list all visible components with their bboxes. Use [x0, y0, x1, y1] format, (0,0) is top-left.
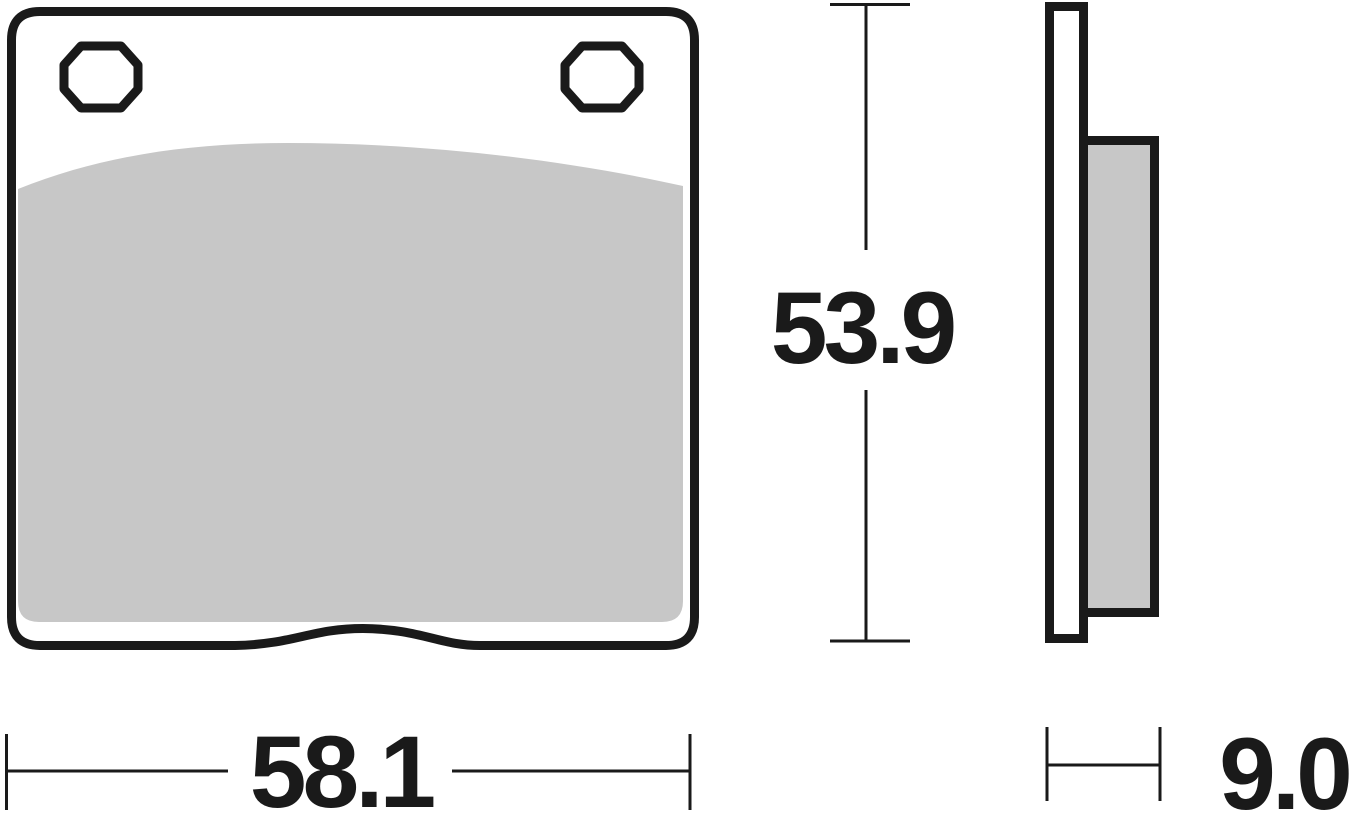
height-dimension: 53.9: [771, 5, 954, 642]
mounting-hole-right: [565, 46, 639, 108]
side-backplate: [1050, 7, 1084, 639]
thickness-dimension-label: 9.0: [1219, 717, 1349, 813]
brake-pad-drawing: 58.1 53.9 9.0: [0, 0, 1355, 813]
side-friction-material: [1083, 141, 1155, 613]
width-dimension-label: 58.1: [250, 715, 434, 813]
height-dimension-label: 53.9: [771, 271, 954, 385]
thickness-dimension: 9.0: [1047, 717, 1349, 813]
side-view: [1050, 7, 1155, 639]
front-friction-material: [18, 143, 683, 622]
front-view: [12, 12, 695, 646]
technical-drawing-canvas: 58.1 53.9 9.0: [0, 0, 1355, 813]
mounting-hole-left: [64, 46, 138, 108]
width-dimension: 58.1: [7, 715, 691, 813]
